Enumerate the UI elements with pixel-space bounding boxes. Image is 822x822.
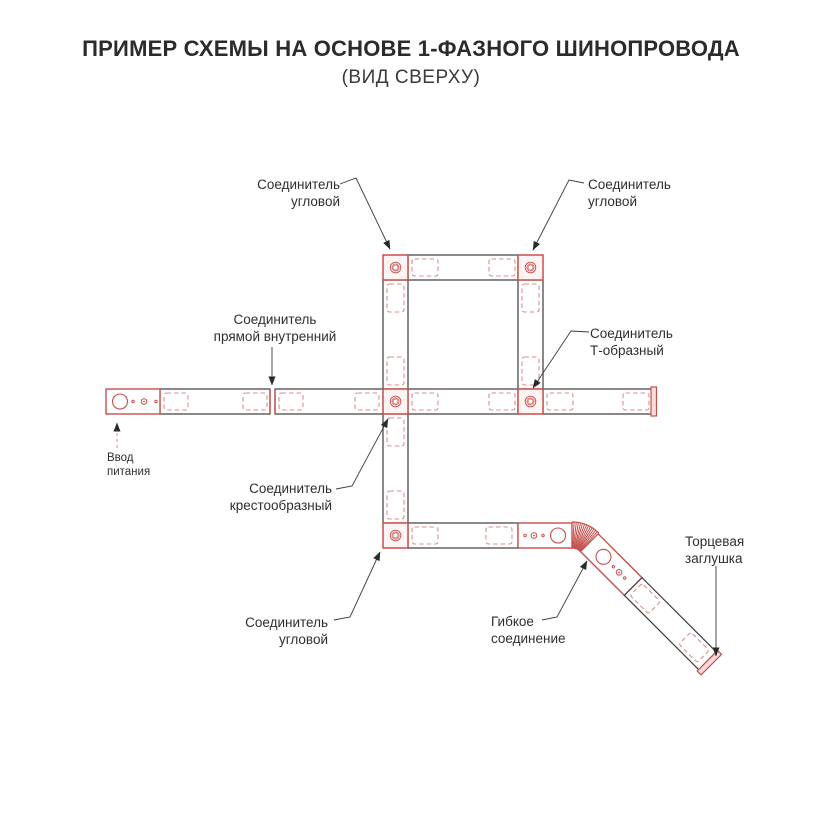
- label-corner-bottom: Соединитель угловой: [245, 614, 328, 648]
- label-power-input: Ввод питания: [107, 451, 150, 479]
- busbar-diagram: [0, 0, 822, 822]
- label-cross: Соединитель крестообразный: [230, 480, 332, 514]
- straight-internal-connector: [270, 389, 275, 414]
- diagram-page: ПРИМЕР СХЕМЫ НА ОСНОВЕ 1-ФАЗНОГО ШИНОПРО…: [0, 0, 822, 822]
- leader-flexible: [542, 561, 587, 620]
- label-end-cap: Торцевая заглушка: [685, 533, 744, 567]
- leader-corner-top-left: [340, 178, 390, 249]
- track-segment: [624, 578, 716, 670]
- label-flexible: Гибкое соединение: [491, 613, 566, 647]
- corner-connector-top-left: [383, 255, 408, 280]
- leader-cross: [336, 419, 388, 489]
- leader-corner-bottom: [334, 552, 380, 620]
- label-t-shaped: Соединитель Т-образный: [590, 325, 673, 359]
- corner-connector-top-right: [518, 255, 543, 280]
- power-feed-track: [106, 389, 160, 414]
- flex-feed-section: [518, 523, 572, 548]
- corner-connector-bottom: [383, 523, 408, 548]
- leader-corner-top-right: [533, 180, 584, 250]
- label-straight-internal: Соединитель прямой внутренний: [155, 311, 395, 345]
- label-corner-top-left: Соединитель угловой: [257, 176, 340, 210]
- cross-connector: [383, 389, 408, 414]
- end-cap-right: [651, 387, 657, 416]
- t-connector: [518, 389, 543, 414]
- label-corner-top-right: Соединитель угловой: [588, 176, 671, 210]
